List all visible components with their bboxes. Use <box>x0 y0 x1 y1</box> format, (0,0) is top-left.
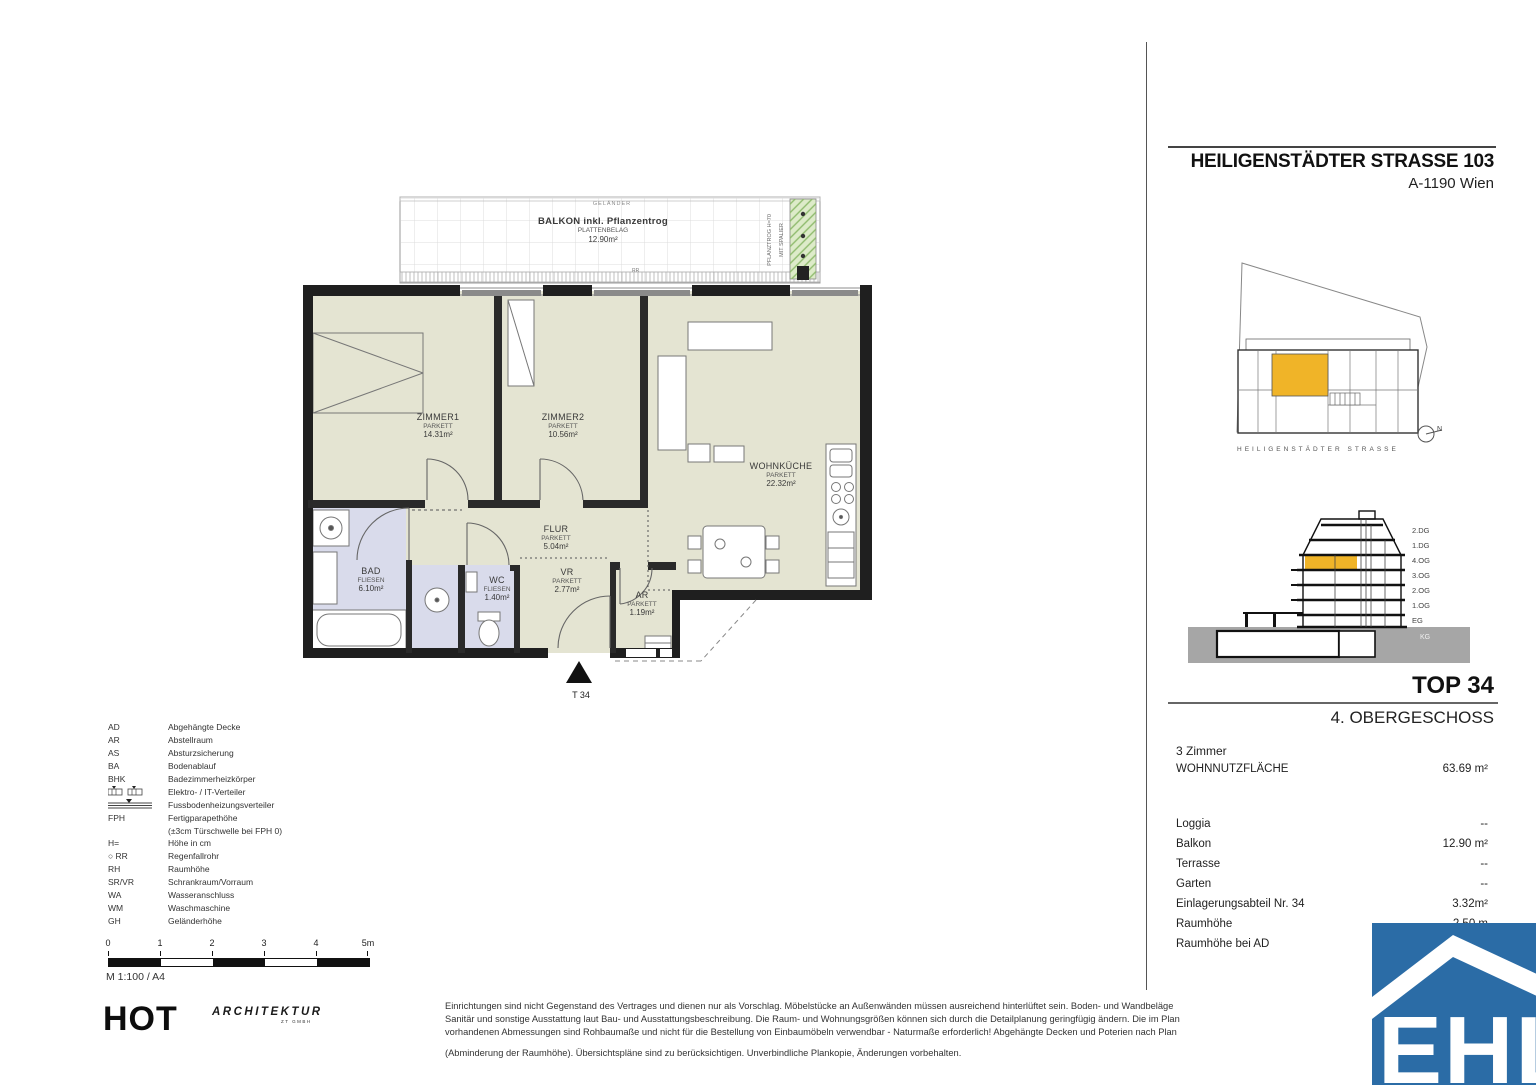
scale-tick <box>367 951 368 956</box>
scale-tick <box>316 951 317 956</box>
architect-logo-sub: ZT GMBH <box>281 1019 312 1024</box>
project-title: HEILIGENSTÄDTER STRASSE 103 <box>1160 151 1494 173</box>
architect-logo-suffix: ARCHITEKTUR <box>212 1006 323 1018</box>
legend-item: AD Abgehängte Decke <box>108 721 282 734</box>
room-label-flur: FLUR PARKETT 5.04m² <box>541 524 571 552</box>
room-label-bad: BAD FLIESEN 6.10m² <box>357 566 384 594</box>
legend: AD Abgehängte Decke AR Abstellraum AS Ab… <box>108 721 282 927</box>
legend-item: Fussbodenheizungsverteiler <box>108 798 282 811</box>
legend-item: ○ RR Regenfallrohr <box>108 850 282 863</box>
floor-plan-sheet: GELÄNDER BALKON inkl. Pflanzentrog PLATT… <box>0 0 1536 1085</box>
ehl-logo-text: EHL <box>1378 997 1536 1085</box>
scale-tick-label: 5m <box>362 938 375 948</box>
main-area-label: WOHNNUTZFLÄCHE <box>1176 763 1288 775</box>
scale-tick-label: 1 <box>157 938 162 948</box>
detail-label: Loggia <box>1176 818 1211 830</box>
detail-label: Balkon <box>1176 838 1211 850</box>
sidebar-divider <box>1146 42 1147 990</box>
fussbodenheizungsverteiler-symbol <box>108 799 152 809</box>
floor-label: 2.OG <box>1412 583 1430 598</box>
section-floor-labels: 2.DG 1.DG 4.OG 3.OG 2.OG 1.OG EG <box>1412 523 1430 628</box>
scale-tick <box>108 951 109 956</box>
legend-item: BA Bodenablauf <box>108 760 282 773</box>
highlighted-unit <box>1272 354 1328 396</box>
room-label-wohnkueche: WOHNKÜCHE PARKETT 22.32m² <box>750 461 813 489</box>
scale-tick-label: 3 <box>261 938 266 948</box>
scale-note: M 1:100 / A4 <box>106 971 165 983</box>
legend-item: WA Wasseranschluss <box>108 889 282 902</box>
basement-label: KG <box>1420 634 1430 641</box>
room-label-ar: AR PARKETT 1.19m² <box>627 590 657 618</box>
street-label: HEILIGENSTÄDTER STRASSE <box>1237 446 1399 453</box>
unit-number: TOP 34 <box>1160 672 1494 700</box>
detail-value: -- <box>1480 818 1488 830</box>
room-label-vr: VR PARKETT 2.77m² <box>552 567 582 595</box>
planter-label-1: PFLANZTROG H=70 <box>767 214 773 266</box>
legend-item: H= Höhe in cm <box>108 837 282 850</box>
rooms-summary: 3 Zimmer <box>1176 744 1227 758</box>
ehl-logo: EHL <box>1372 923 1536 1085</box>
scale-tick-label: 2 <box>209 938 214 948</box>
ehl-logo-graphic: EHL <box>1372 923 1536 1085</box>
detail-value: -- <box>1480 878 1488 890</box>
railing-label: GELÄNDER <box>593 201 631 207</box>
site-plan <box>1180 255 1510 465</box>
balcony-label: BALKON inkl. Pflanzentrog PLATTENBELAG 1… <box>538 216 668 244</box>
floor-label: 2.DG <box>1412 523 1430 538</box>
detail-value: -- <box>1480 858 1488 870</box>
detail-row: Garten -- <box>1176 878 1488 890</box>
detail-label: Raumhöhe bei AD <box>1176 938 1269 950</box>
legend-item: SR/VR Schrankraum/Vorraum <box>108 876 282 889</box>
legend-item: BHK Badezimmerheizkörper <box>108 773 282 786</box>
detail-value: 12.90 m² <box>1443 838 1488 850</box>
legend-item: AS Absturzsicherung <box>108 747 282 760</box>
detail-row: Einlagerungsabteil Nr. 34 3.32m² <box>1176 898 1488 910</box>
room-label-zimmer2: ZIMMER2 PARKETT 10.56m² <box>542 412 585 440</box>
drain-label: RR <box>632 268 639 274</box>
north-label: N <box>1437 426 1442 433</box>
scale-bar <box>108 958 370 967</box>
detail-label: Raumhöhe <box>1176 918 1232 930</box>
scale-tick <box>264 951 265 956</box>
scale-tick-label: 0 <box>105 938 110 948</box>
unit-rule <box>1168 702 1498 704</box>
detail-row: Terrasse -- <box>1176 858 1488 870</box>
architect-logo: HOT <box>103 1000 178 1039</box>
main-area-row: WOHNNUTZFLÄCHE 63.69 m² <box>1176 763 1488 775</box>
unit-floor-name: 4. OBERGESCHOSS <box>1160 708 1494 728</box>
title-rule <box>1168 146 1496 148</box>
entrance-arrow-icon <box>566 661 592 683</box>
windows <box>460 288 860 296</box>
detail-label: Einlagerungsabteil Nr. 34 <box>1176 898 1305 910</box>
main-area-value: 63.69 m² <box>1443 763 1488 775</box>
planter-label-2: MIT SPALIER <box>779 223 785 257</box>
highlighted-floor <box>1305 555 1357 570</box>
legend-item: AR Abstellraum <box>108 734 282 747</box>
project-address: A-1190 Wien <box>1160 175 1494 192</box>
floor-label: 3.OG <box>1412 568 1430 583</box>
building-section <box>1185 505 1475 667</box>
elektro-it-verteiler-symbol <box>108 786 146 796</box>
detail-row: Balkon 12.90 m² <box>1176 838 1488 850</box>
entrance-door-label: T 34 <box>572 690 590 700</box>
room-label-zimmer1: ZIMMER1 PARKETT 14.31m² <box>417 412 460 440</box>
scale-tick-label: 4 <box>313 938 318 948</box>
detail-value: 3.32m² <box>1452 898 1488 910</box>
detail-row: Loggia -- <box>1176 818 1488 830</box>
detail-label: Terrasse <box>1176 858 1220 870</box>
legend-item: WM Waschmaschine <box>108 901 282 914</box>
floor-label: 4.OG <box>1412 553 1430 568</box>
floor-label: 1.DG <box>1412 538 1430 553</box>
legend-item: RH Raumhöhe <box>108 863 282 876</box>
legend-item: Elektro- / IT-Verteiler <box>108 785 282 798</box>
legend-item: (±3cm Türschwelle bei FPH 0) <box>108 824 282 837</box>
room-label-wc: WC FLIESEN 1.40m² <box>483 575 510 603</box>
detail-label: Garten <box>1176 878 1211 890</box>
scale-tick <box>212 951 213 956</box>
legend-item: FPH Fertigparapethöhe <box>108 811 282 824</box>
floor-label: 1.OG <box>1412 598 1430 613</box>
floor-plan-drawing <box>0 0 1140 760</box>
legend-item: GH Geländerhöhe <box>108 914 282 927</box>
scale-tick <box>160 951 161 956</box>
floor-label: EG <box>1412 613 1430 628</box>
